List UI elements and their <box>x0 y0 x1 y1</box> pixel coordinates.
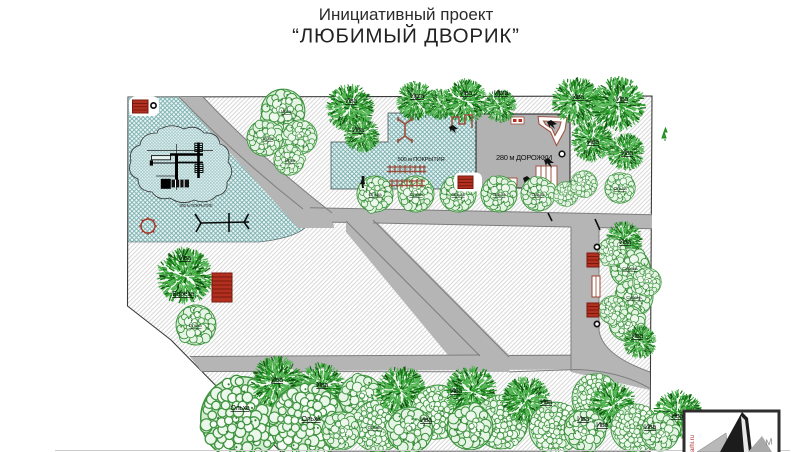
svg-text:Ива: Ива <box>352 127 364 134</box>
svg-text:Ольха: Ольха <box>452 192 466 198</box>
svg-text:Ольха: Ольха <box>493 192 507 198</box>
svg-text:Сирень: Сирень <box>622 266 638 272</box>
svg-text:Ирга: Ирга <box>494 90 508 97</box>
svg-text:Ива: Ива <box>619 239 631 246</box>
svg-text:Ирга: Ирга <box>281 109 291 115</box>
svg-text:Ольха: Ольха <box>369 192 383 198</box>
svg-text:Ива: Ива <box>587 139 599 146</box>
svg-text:“ЛЮБИМЫЙ ДВОРИК”: “ЛЮБИМЫЙ ДВОРИК” <box>292 24 520 48</box>
svg-text:arhi.ru: arhi.ru <box>690 435 696 452</box>
svg-text:Ива: Ива <box>577 416 589 423</box>
svg-text:280 м ДОРОЖКИ: 280 м ДОРОЖКИ <box>496 153 552 162</box>
svg-text:Ива: Ива <box>572 94 584 101</box>
svg-text:Ива: Ива <box>644 424 656 431</box>
svg-text:Ива: Ива <box>616 96 628 103</box>
svg-text:Ива: Ива <box>460 90 472 97</box>
svg-text:Сирень: Сирень <box>626 295 642 301</box>
svg-text:Ива: Ива <box>621 150 633 157</box>
svg-text:Ива: Ива <box>631 333 643 340</box>
svg-text:Ольха: Ольха <box>189 323 203 329</box>
svg-text:Ольха: Ольха <box>532 192 546 198</box>
svg-text:Ольха: Ольха <box>231 405 250 412</box>
svg-text:Берёза: Берёза <box>172 291 194 298</box>
svg-text:Ольха: Ольха <box>614 186 628 192</box>
svg-text:Ива: Ива <box>179 255 191 262</box>
svg-text:Ива: Ива <box>450 388 462 395</box>
svg-text:Ольха: Ольха <box>302 416 321 423</box>
svg-text:Ива: Ива <box>271 377 283 384</box>
svg-text:800 м ПОКРЫТИЕ: 800 м ПОКРЫТИЕ <box>180 203 213 208</box>
svg-text:Ива: Ива <box>316 382 328 389</box>
svg-text:Ольха: Ольха <box>368 425 382 431</box>
svg-text:500 м ПОКРЫТИЯ: 500 м ПОКРЫТИЯ <box>397 157 444 163</box>
svg-text:Ива: Ива <box>596 422 608 429</box>
svg-text:Ива: Ива <box>420 417 432 424</box>
svg-text:Ирга: Ирга <box>263 136 273 142</box>
svg-text:Ирга: Ирга <box>285 158 295 164</box>
svg-text:Ольха: Ольха <box>410 192 424 198</box>
svg-text:Ива: Ива <box>345 98 357 105</box>
svg-text:Инициативный проект: Инициативный проект <box>319 5 494 24</box>
svg-text:Ива: Ива <box>671 413 683 420</box>
svg-text:Ива: Ива <box>540 399 552 406</box>
svg-text:Ирга: Ирга <box>410 93 424 100</box>
